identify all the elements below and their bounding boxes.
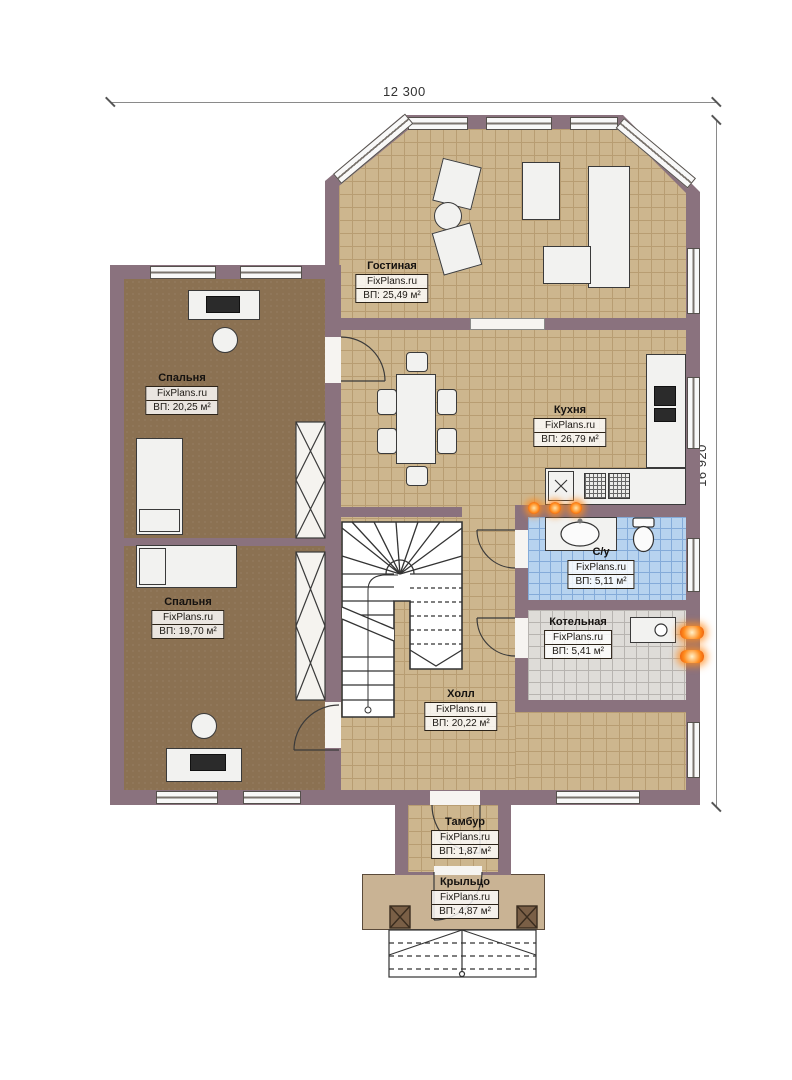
dimension-line-right: [716, 120, 717, 807]
kitchen-oven: [654, 408, 676, 422]
wall-bedrooms-hall-b: [325, 383, 341, 702]
brand-text: FixPlans.ru: [545, 631, 611, 645]
hall-floor: [339, 505, 515, 790]
dining-table: [396, 374, 436, 464]
heat-indicator: [549, 502, 561, 514]
desk-chair: [191, 713, 217, 739]
dining-chair: [437, 389, 457, 415]
wall-hall-bath-1: [515, 517, 528, 530]
room-name: Холл: [447, 688, 475, 700]
brand-text: FixPlans.ru: [432, 891, 498, 905]
heat-indicator: [680, 626, 704, 639]
wall-bedrooms-hall-c: [325, 748, 341, 790]
room-info-box: FixPlans.ru ВП: 20,25 м²: [145, 386, 218, 415]
room-label-porch: Крыльцо FixPlans.ru ВП: 4,87 м²: [431, 876, 499, 919]
tv-stand: [522, 162, 560, 220]
door-opening-entry: [430, 791, 480, 805]
wall-boiler-bottom: [528, 700, 686, 712]
room-label-bedroom2: Спальня FixPlans.ru ВП: 19,70 м²: [151, 596, 224, 639]
wall-hall-bath-2: [515, 568, 528, 618]
window: [150, 266, 216, 279]
room-label-hall: Холл FixPlans.ru ВП: 20,22 м²: [424, 688, 497, 731]
window: [243, 791, 301, 804]
window: [687, 538, 700, 592]
room-info-box: FixPlans.ru ВП: 26,79 м²: [533, 418, 606, 447]
room-name: Спальня: [158, 372, 206, 384]
brand-text: FixPlans.ru: [146, 387, 217, 401]
room-area: ВП: 20,22 м²: [425, 717, 496, 730]
room-info-box: FixPlans.ru ВП: 5,11 м²: [567, 560, 634, 589]
dining-chair: [406, 466, 428, 486]
boiler-unit: [630, 617, 676, 643]
room-name: Тамбур: [445, 816, 485, 828]
room-name: Котельная: [549, 616, 607, 628]
door-opening-boiler: [515, 618, 528, 658]
wall-bath-boiler: [528, 600, 686, 610]
room-label-tambur: Тамбур FixPlans.ru ВП: 1,87 м²: [431, 816, 499, 859]
room-name: Крыльцо: [440, 876, 490, 888]
room-name: С/у: [592, 546, 609, 558]
room-info-box: FixPlans.ru ВП: 25,49 м²: [355, 274, 428, 303]
brand-text: FixPlans.ru: [432, 831, 498, 845]
wall-dining-stairs: [339, 507, 462, 517]
window: [486, 117, 552, 130]
bed-pillow: [139, 548, 166, 585]
passage-living-kitchen: [470, 318, 545, 330]
room-label-kitchen: Кухня FixPlans.ru ВП: 26,79 м²: [533, 404, 606, 447]
room-area: ВП: 20,25 м²: [146, 401, 217, 414]
brand-text: FixPlans.ru: [152, 611, 223, 625]
room-name: Спальня: [164, 596, 212, 608]
wall-hall-bath-3: [515, 658, 528, 712]
window: [556, 791, 640, 804]
dining-chair: [377, 389, 397, 415]
room-area: ВП: 1,87 м²: [432, 845, 498, 858]
room-area: ВП: 19,70 м²: [152, 625, 223, 638]
wall-bathroom-top: [515, 505, 686, 517]
room-info-box: FixPlans.ru ВП: 1,87 м²: [431, 830, 499, 859]
brand-text: FixPlans.ru: [568, 561, 633, 575]
window: [156, 791, 218, 804]
door-opening-bedroom2: [325, 702, 341, 748]
heat-indicator: [680, 650, 704, 663]
kitchen-sink: [654, 386, 676, 406]
door-opening-bedroom1: [325, 337, 341, 383]
heat-indicator: [528, 502, 540, 514]
room-info-box: FixPlans.ru ВП: 19,70 м²: [151, 610, 224, 639]
dining-chair: [406, 352, 428, 372]
room-name: Гостиная: [367, 260, 417, 272]
dishwasher-box: [548, 471, 574, 501]
room-label-boiler: Котельная FixPlans.ru ВП: 5,41 м²: [544, 616, 612, 659]
window: [687, 248, 700, 314]
dining-chair: [377, 428, 397, 454]
dimension-width-label: 12 300: [383, 84, 426, 99]
desk-chair: [212, 327, 238, 353]
door-opening-porch: [434, 866, 482, 875]
room-label-bathroom: С/у FixPlans.ru ВП: 5,11 м²: [567, 546, 634, 589]
dining-chair: [437, 428, 457, 454]
bed-pillow: [139, 509, 180, 532]
room-area: ВП: 25,49 м²: [356, 289, 427, 302]
room-area: ВП: 4,87 м²: [432, 905, 498, 918]
sofa-vertical: [588, 166, 630, 288]
room-info-box: FixPlans.ru ВП: 4,87 м²: [431, 890, 499, 919]
wall-bedrooms-hall-a: [325, 265, 341, 337]
window: [570, 117, 618, 130]
stove-burners: [608, 473, 630, 499]
room-info-box: FixPlans.ru ВП: 20,22 м²: [424, 702, 497, 731]
room-name: Кухня: [554, 404, 586, 416]
room-area: ВП: 26,79 м²: [534, 433, 605, 446]
wall-living-kitchen-b: [545, 318, 686, 330]
desk-computer: [206, 296, 240, 313]
door-opening-bathroom: [515, 530, 528, 568]
porch-steps: [389, 930, 536, 977]
sofa-horizontal: [543, 246, 591, 284]
stove-burners: [584, 473, 606, 499]
room-area: ВП: 5,41 м²: [545, 645, 611, 658]
dimension-line-top: [110, 102, 717, 103]
desk-computer: [190, 754, 226, 771]
room-area: ВП: 5,11 м²: [568, 575, 633, 588]
brand-text: FixPlans.ru: [534, 419, 605, 433]
window: [240, 266, 302, 279]
heat-indicator: [570, 502, 582, 514]
room-label-bedroom1: Спальня FixPlans.ru ВП: 20,25 м²: [145, 372, 218, 415]
hall-floor-right: [515, 712, 686, 790]
window: [687, 377, 700, 449]
room-label-living: Гостиная FixPlans.ru ВП: 25,49 м²: [355, 260, 428, 303]
brand-text: FixPlans.ru: [425, 703, 496, 717]
window: [687, 722, 700, 778]
wall-living-kitchen-a: [339, 318, 470, 330]
floor-plan: 12 300 16 920: [0, 0, 792, 1080]
window: [408, 117, 468, 130]
brand-text: FixPlans.ru: [356, 275, 427, 289]
room-info-box: FixPlans.ru ВП: 5,41 м²: [544, 630, 612, 659]
